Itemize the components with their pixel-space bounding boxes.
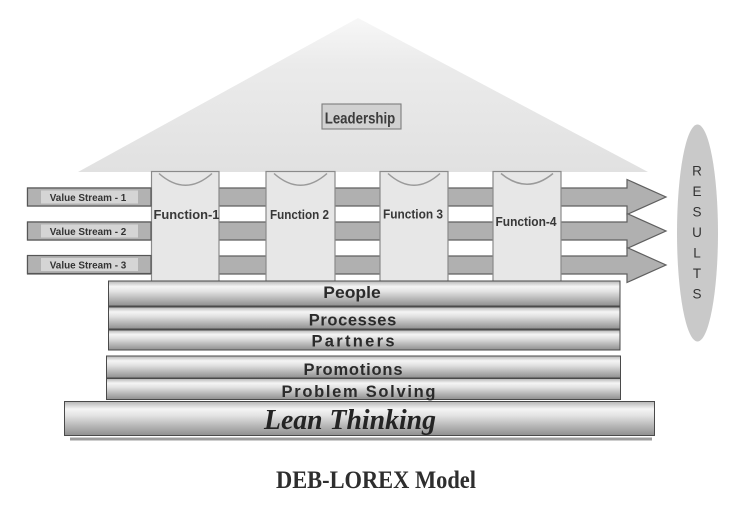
svg-text:Value Stream - 3: Value Stream - 3 bbox=[50, 260, 127, 271]
svg-text:Function 2: Function 2 bbox=[270, 208, 329, 222]
svg-text:E: E bbox=[692, 184, 701, 199]
svg-text:Value Stream - 2: Value Stream - 2 bbox=[50, 227, 127, 238]
svg-text:DEB-LOREX Model: DEB-LOREX Model bbox=[276, 467, 476, 494]
svg-text:Lean Thinking: Lean Thinking bbox=[263, 404, 436, 436]
svg-text:L: L bbox=[693, 246, 701, 261]
svg-text:S: S bbox=[692, 205, 701, 220]
svg-text:Function-1: Function-1 bbox=[154, 208, 220, 222]
svg-text:Partners: Partners bbox=[312, 333, 395, 351]
svg-text:Value Stream - 1: Value Stream - 1 bbox=[50, 193, 127, 204]
svg-text:R: R bbox=[692, 164, 702, 179]
svg-text:S: S bbox=[692, 287, 701, 302]
svg-text:Leadership: Leadership bbox=[325, 111, 396, 128]
svg-text:T: T bbox=[693, 266, 701, 281]
svg-text:U: U bbox=[692, 225, 702, 240]
svg-text:Promotions: Promotions bbox=[304, 361, 403, 379]
svg-text:Function 3: Function 3 bbox=[383, 208, 443, 222]
svg-text:People: People bbox=[323, 284, 381, 302]
svg-text:Function-4: Function-4 bbox=[496, 215, 557, 229]
svg-text:Processes: Processes bbox=[309, 312, 397, 330]
